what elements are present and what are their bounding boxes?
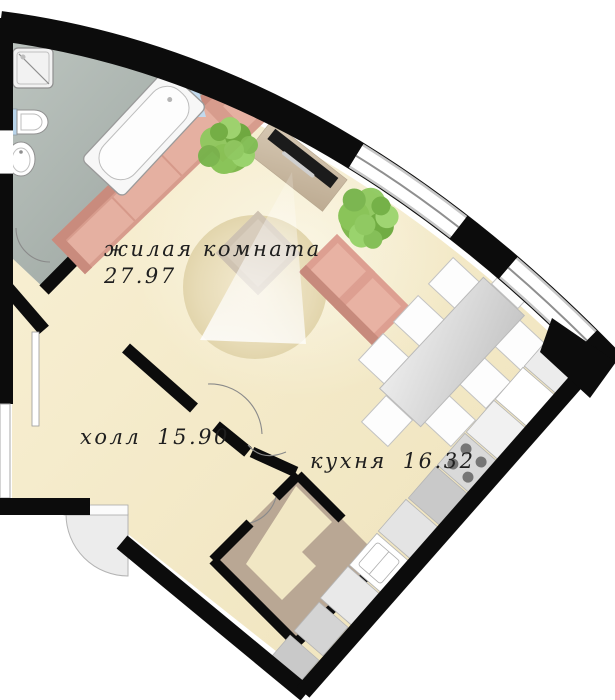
living-room-label: жилая комната [104, 237, 322, 261]
shower-tray [13, 48, 53, 88]
floor-plan-drawing: жилая комната 27.97 холл15.90 кухня16.32 [0, 0, 615, 700]
left-wall-lower [0, 174, 13, 404]
living-room-area: 27.97 [103, 264, 177, 288]
left-wall-upper [0, 18, 13, 130]
bottom-left-wall [0, 498, 90, 515]
left-window [0, 404, 10, 498]
sliding-door[interactable] [32, 332, 39, 426]
toilet [8, 109, 48, 135]
floor-plan: жилая комната 27.97 холл15.90 кухня16.32 [0, 0, 615, 700]
entrance-door[interactable] [64, 505, 128, 576]
wall-shaft-notch [0, 130, 13, 174]
